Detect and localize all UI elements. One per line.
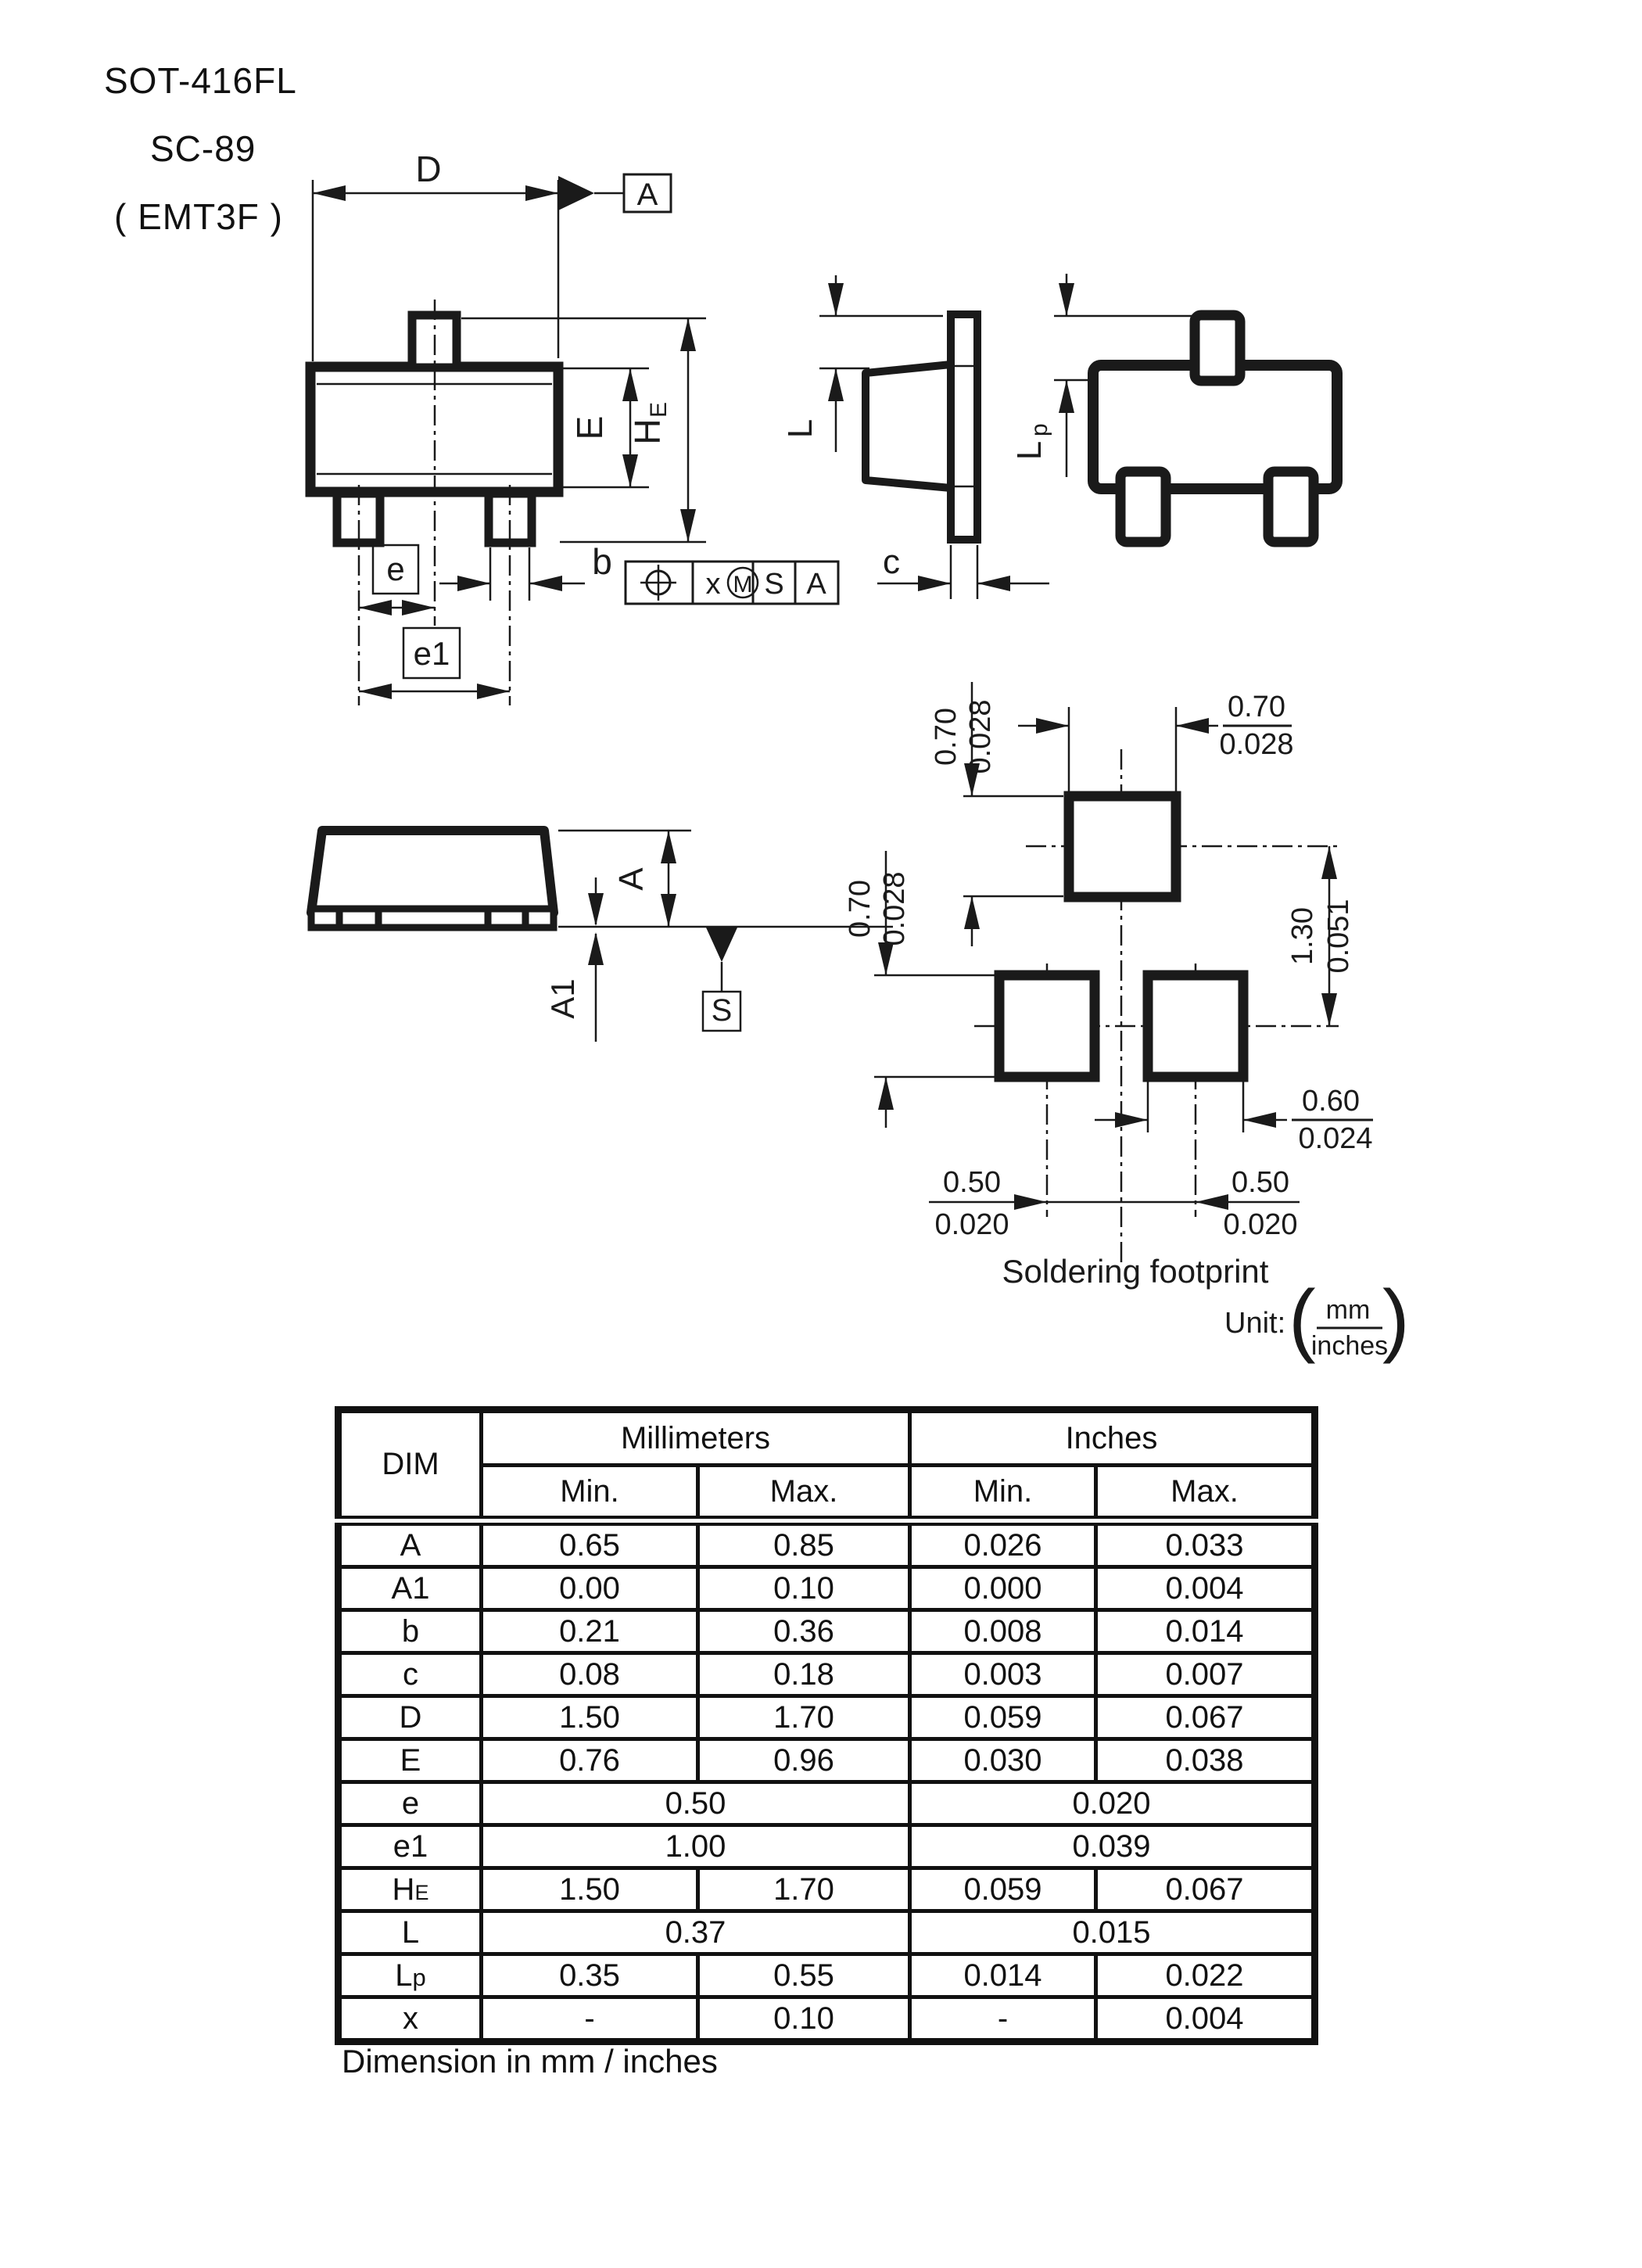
value-cell: 0.059 bbox=[910, 1868, 1096, 1911]
value-cell: 0.85 bbox=[698, 1521, 910, 1567]
value-cell: - bbox=[910, 1997, 1096, 2042]
value-cell: 0.020 bbox=[910, 1782, 1315, 1825]
table-row: E 0.76 0.96 0.030 0.038 bbox=[339, 1739, 1315, 1782]
table-row: c 0.08 0.18 0.003 0.007 bbox=[339, 1653, 1315, 1696]
value-cell: 0.003 bbox=[910, 1653, 1096, 1696]
table-row: L 0.37 0.015 bbox=[339, 1911, 1315, 1954]
value-cell: 0.014 bbox=[910, 1954, 1096, 1997]
value-cell: 0.18 bbox=[698, 1653, 910, 1696]
value-cell: 0.50 bbox=[482, 1782, 910, 1825]
datum-a-triangle-icon bbox=[558, 176, 594, 210]
fp-top-width-mm: 0.70 bbox=[1228, 691, 1285, 723]
col-header-dim: DIM bbox=[339, 1410, 482, 1521]
value-cell: 1.70 bbox=[698, 1696, 910, 1739]
dimension-table-wrap: DIM Millimeters Inches Min. Max. Min. Ma… bbox=[335, 1406, 1318, 2045]
dim-label-HE: H bbox=[627, 418, 668, 444]
dim-cell: L bbox=[339, 1911, 482, 1954]
value-cell: 0.014 bbox=[1096, 1610, 1315, 1653]
value-cell: 0.55 bbox=[698, 1954, 910, 1997]
value-cell: 0.039 bbox=[910, 1825, 1315, 1868]
fp-top-width-in: 0.028 bbox=[1219, 728, 1293, 761]
value-cell: 1.50 bbox=[482, 1696, 698, 1739]
footprint-bottom-pad-right bbox=[1148, 975, 1243, 1077]
dim-label-L: L bbox=[781, 419, 819, 438]
dim-cell: HE bbox=[339, 1868, 482, 1911]
value-cell: 0.004 bbox=[1096, 1567, 1315, 1610]
unit-mm: mm bbox=[1326, 1295, 1371, 1325]
fp-pitch-left-mm: 0.50 bbox=[943, 1166, 1001, 1199]
dim-cell: A1 bbox=[339, 1567, 482, 1610]
dim-cell: E bbox=[339, 1739, 482, 1782]
fcf-a-label: A bbox=[806, 568, 826, 601]
dim-label-e1: e1 bbox=[414, 635, 450, 672]
value-cell: 0.033 bbox=[1096, 1521, 1315, 1567]
table-row: Lp 0.35 0.55 0.014 0.022 bbox=[339, 1954, 1315, 1997]
value-cell: 0.65 bbox=[482, 1521, 698, 1567]
table-caption: Dimension in mm / inches bbox=[342, 2043, 718, 2080]
seating-body bbox=[311, 831, 554, 913]
fp-vpitch-in: 0.051 bbox=[1322, 899, 1355, 973]
dim-label-b: b bbox=[592, 541, 612, 582]
dim-cell: A bbox=[339, 1521, 482, 1567]
value-cell: 0.08 bbox=[482, 1653, 698, 1696]
dim-cell: b bbox=[339, 1610, 482, 1653]
feature-control-frame: x M S A bbox=[626, 562, 838, 604]
dim-cell: D bbox=[339, 1696, 482, 1739]
fp-lower-height-mm: 0.70 bbox=[844, 880, 877, 938]
value-cell: 0.76 bbox=[482, 1739, 698, 1782]
fp-pitch-right-mm: 0.50 bbox=[1231, 1166, 1289, 1199]
datum-s-triangle-icon bbox=[706, 928, 737, 962]
package-outline-drawing: D A bbox=[0, 0, 1642, 1392]
table-row: HE 1.50 1.70 0.059 0.067 bbox=[339, 1868, 1315, 1911]
table-row: e1 1.00 0.039 bbox=[339, 1825, 1315, 1868]
value-cell: 0.059 bbox=[910, 1696, 1096, 1739]
front-view: D A bbox=[310, 149, 838, 705]
dim-cell: e1 bbox=[339, 1825, 482, 1868]
fcf-m-label: M bbox=[733, 572, 753, 598]
datum-a-label: A bbox=[637, 178, 658, 212]
table-row: e 0.50 0.020 bbox=[339, 1782, 1315, 1825]
footprint-title: Soldering footprint bbox=[1002, 1253, 1269, 1290]
datasheet-page: SOT-416FL SC-89 ( EMT3F ) D A bbox=[0, 0, 1642, 2268]
dim-label-HE-sub: E bbox=[646, 402, 672, 418]
fp-pad-width-mm: 0.60 bbox=[1302, 1085, 1360, 1118]
value-cell: 0.067 bbox=[1096, 1696, 1315, 1739]
seating-feet bbox=[311, 909, 554, 928]
value-cell: 0.022 bbox=[1096, 1954, 1315, 1997]
value-cell: 0.35 bbox=[482, 1954, 698, 1997]
table-row: A 0.65 0.85 0.026 0.033 bbox=[339, 1521, 1315, 1567]
value-cell: 0.21 bbox=[482, 1610, 698, 1653]
dimension-table: DIM Millimeters Inches Min. Max. Min. Ma… bbox=[335, 1406, 1318, 2045]
value-cell: 0.10 bbox=[698, 1997, 910, 2042]
value-cell: - bbox=[482, 1997, 698, 2042]
side-body bbox=[866, 364, 951, 488]
value-cell: 1.00 bbox=[482, 1825, 910, 1868]
col-header-mm: Millimeters bbox=[482, 1410, 910, 1466]
value-cell: 0.00 bbox=[482, 1567, 698, 1610]
value-cell: 0.008 bbox=[910, 1610, 1096, 1653]
value-cell: 0.37 bbox=[482, 1911, 910, 1954]
dim-cell: Lp bbox=[339, 1954, 482, 1997]
dim-label-D: D bbox=[415, 149, 441, 189]
dim-cell: c bbox=[339, 1653, 482, 1696]
value-cell: 0.026 bbox=[910, 1521, 1096, 1567]
table-row: A1 0.00 0.10 0.000 0.004 bbox=[339, 1567, 1315, 1610]
fp-upper-height-mm: 0.70 bbox=[930, 708, 963, 766]
fp-pitch-right-in: 0.020 bbox=[1223, 1208, 1297, 1241]
fp-lower-height-in: 0.028 bbox=[878, 871, 911, 946]
fp-pitch-left-in: 0.020 bbox=[934, 1208, 1009, 1241]
datum-s-label: S bbox=[712, 993, 733, 1028]
value-cell: 0.10 bbox=[698, 1567, 910, 1610]
col-header-in-max: Max. bbox=[1096, 1466, 1315, 1521]
table-row: D 1.50 1.70 0.059 0.067 bbox=[339, 1696, 1315, 1739]
top-view: L p bbox=[1010, 274, 1337, 542]
unit-prefix: Unit: bbox=[1224, 1307, 1285, 1340]
col-header-mm-min: Min. bbox=[482, 1466, 698, 1521]
value-cell: 0.038 bbox=[1096, 1739, 1315, 1782]
top-bottom-lead-right bbox=[1268, 472, 1314, 542]
table-row: x - 0.10 - 0.004 bbox=[339, 1997, 1315, 2042]
footprint-top-pad bbox=[1069, 796, 1176, 897]
value-cell: 0.000 bbox=[910, 1567, 1096, 1610]
value-cell: 0.36 bbox=[698, 1610, 910, 1653]
col-header-in-min: Min. bbox=[910, 1466, 1096, 1521]
value-cell: 0.030 bbox=[910, 1739, 1096, 1782]
dim-label-c: c bbox=[883, 543, 900, 581]
dim-arrowhead bbox=[313, 185, 346, 201]
dim-label-A: A bbox=[612, 867, 651, 891]
dim-arrowhead bbox=[525, 185, 558, 201]
fp-pad-width-in: 0.024 bbox=[1298, 1122, 1372, 1155]
col-header-mm-max: Max. bbox=[698, 1466, 910, 1521]
dim-label-Lp: L bbox=[1010, 441, 1049, 460]
value-cell: 0.004 bbox=[1096, 1997, 1315, 2042]
value-cell: 0.067 bbox=[1096, 1868, 1315, 1911]
fcf-s-label: S bbox=[764, 568, 783, 601]
top-lead bbox=[1195, 315, 1240, 381]
unit-inches: inches bbox=[1311, 1331, 1388, 1361]
dim-label-e: e bbox=[386, 551, 404, 587]
paren-close: ) bbox=[1382, 1274, 1410, 1365]
dim-cell: e bbox=[339, 1782, 482, 1825]
side-view: L c bbox=[781, 275, 1049, 599]
dim-label-E: E bbox=[569, 416, 610, 440]
value-cell: 0.007 bbox=[1096, 1653, 1315, 1696]
footprint-bottom-pad-left bbox=[999, 975, 1095, 1077]
value-cell: 1.70 bbox=[698, 1868, 910, 1911]
dim-label-A1: A1 bbox=[544, 978, 581, 1018]
top-bottom-lead-left bbox=[1120, 472, 1166, 542]
dim-label-Lp-sub: p bbox=[1027, 423, 1052, 436]
fcf-x-label: x bbox=[706, 568, 721, 601]
fp-vpitch-mm: 1.30 bbox=[1286, 907, 1319, 965]
value-cell: 1.50 bbox=[482, 1868, 698, 1911]
col-header-in: Inches bbox=[910, 1410, 1315, 1466]
seating-view: A A1 S bbox=[311, 831, 893, 1042]
table-row: b 0.21 0.36 0.008 0.014 bbox=[339, 1610, 1315, 1653]
side-lead-plate bbox=[951, 314, 977, 540]
dim-cell: x bbox=[339, 1997, 482, 2042]
value-cell: 0.015 bbox=[910, 1911, 1315, 1954]
value-cell: 0.96 bbox=[698, 1739, 910, 1782]
fp-upper-height-in: 0.028 bbox=[964, 699, 997, 773]
soldering-footprint: 0.70 0.028 0.70 0.028 0.70 0.028 bbox=[844, 682, 1410, 1365]
